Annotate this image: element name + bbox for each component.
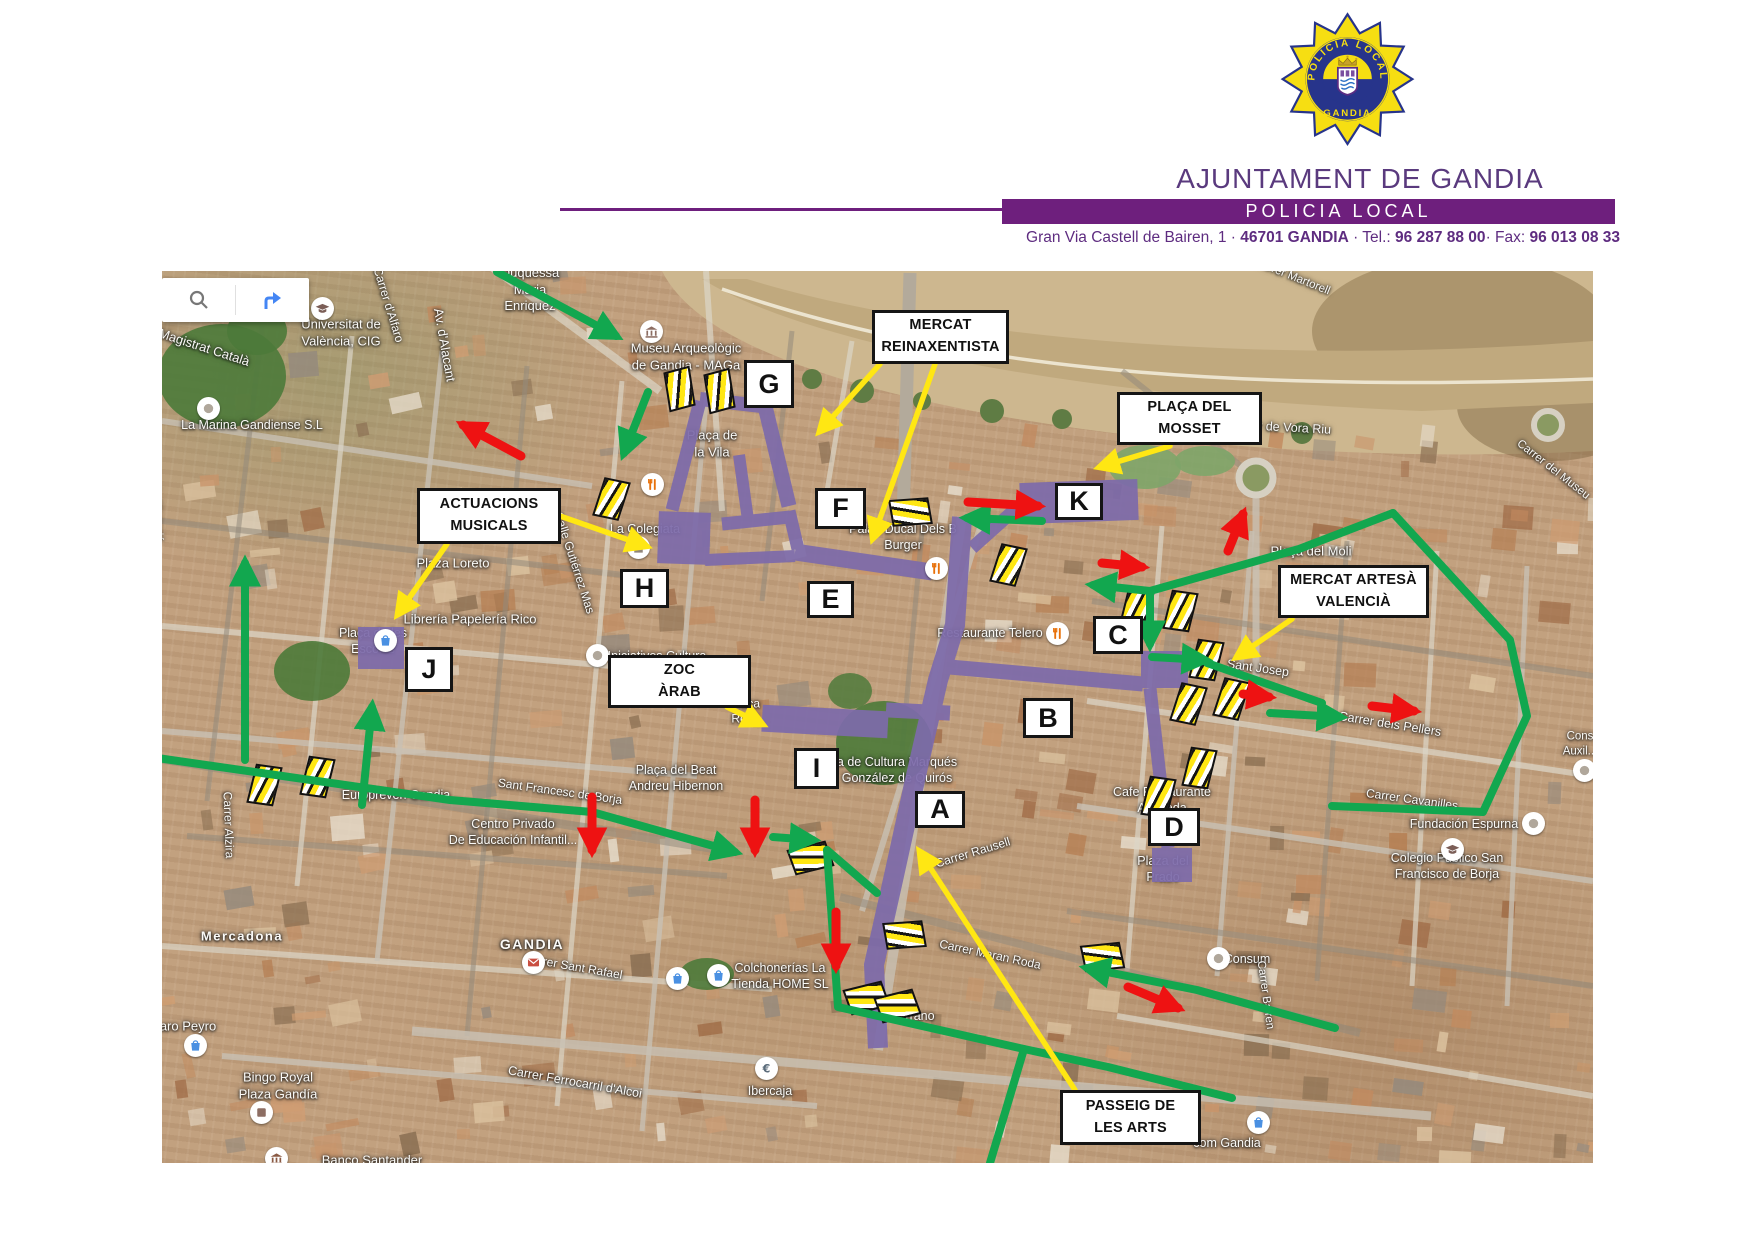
zone-label-I: I <box>794 748 839 789</box>
crosswalk-marking <box>703 368 735 415</box>
map-place-label: Carrer Bairen <box>1253 960 1277 1030</box>
map-place-label: Carrer de l'Estació <box>162 447 166 542</box>
map-place-label: Banco Santander <box>322 1153 422 1163</box>
map-place-label: Librería Papelería Rico <box>404 612 537 629</box>
map-place-label: Plaza del Prado <box>1137 853 1188 885</box>
map-place-label: Carrer d'Alfaro <box>369 271 406 344</box>
callout-zoc-arab: ZOCÀRAB <box>608 655 751 708</box>
callout-actuacions-musicals: ACTUACIONSMUSICALS <box>417 488 561 544</box>
address-line: Gran Via Castell de Bairen, 1 · 46701 GA… <box>900 229 1620 247</box>
map-place-label: Ibercaja <box>748 1083 792 1099</box>
map-place-label: Carrer Maran Roda <box>938 937 1042 974</box>
policia-local-gandia-badge-logo: POLICIA LOCAL GANDIA <box>1277 9 1418 158</box>
crosswalk-marking <box>842 980 890 1015</box>
map-place-label: Iniciatives Cultura <box>608 648 707 664</box>
map-place-label: Sant Josep <box>1226 656 1290 681</box>
map-labels: Duquessa Maria EnriquezUniversitat de Va… <box>162 271 1593 1163</box>
crosswalk-marking <box>1212 677 1251 721</box>
callout-line: MERCAT ARTESÀ <box>1290 570 1417 592</box>
callout-line: MUSICALS <box>450 516 527 538</box>
map-place-label: aro Peyro <box>162 1019 216 1036</box>
poi-mail-icon <box>522 951 545 974</box>
zone-label-B: B <box>1023 698 1073 738</box>
map-place-label: Sant Francesc de Borja <box>497 776 623 809</box>
callout-line: ÀRAB <box>658 682 701 704</box>
poi-bank-icon <box>265 1147 288 1163</box>
map-place-label: Mercadona <box>201 929 283 946</box>
crosswalk-marking <box>786 840 834 875</box>
map-place-label: Carrer Alzira <box>219 791 237 858</box>
map-place-label: Magistrat Català <box>162 325 252 370</box>
callout-line: MERCAT <box>909 315 971 337</box>
poi-shopping-icon <box>1247 1111 1270 1134</box>
map-place-label: Plaça de les Escoles <box>339 625 407 657</box>
crosswalk-marking <box>246 764 282 807</box>
crosswalk-marking <box>888 497 933 526</box>
police-traffic-plan-page: POLICIA LOCAL GANDIA AJUNTAMENT DE GANDI… <box>0 0 1754 1241</box>
callout-mercat-reinaxentista: MERCATREINAXENTISTA <box>872 310 1009 364</box>
badge-shield-icon <box>1338 68 1357 95</box>
map-place-label: Carrer del Museu <box>1513 437 1592 503</box>
map-place-label: Carrer Sant Rafael <box>522 951 623 983</box>
address-part: 96 013 08 33 <box>1529 229 1620 246</box>
crosswalk-marking <box>1181 747 1217 790</box>
zone-label-G: G <box>744 360 794 408</box>
map-place-label: com Gandia <box>1193 1135 1260 1151</box>
crosswalk-marking <box>1118 589 1154 632</box>
address-part: · Fax: <box>1486 229 1530 246</box>
poi-info-icon <box>1573 759 1593 782</box>
map-search-box[interactable] <box>162 278 309 322</box>
poi-shopping-icon <box>707 964 730 987</box>
crosswalk-marking <box>299 756 335 799</box>
crosswalk-marking <box>882 920 927 949</box>
callout-line: PASSEIG DE <box>1086 1096 1176 1118</box>
zone-label-K: K <box>1055 483 1103 520</box>
header-rule <box>560 208 1003 211</box>
map-place-label: Cons Auxil... <box>1563 729 1593 758</box>
zone-label-H: H <box>620 569 669 608</box>
map-place-label: Europreven Gandia <box>342 787 450 803</box>
address-part: · Tel.: <box>1349 229 1395 246</box>
poi-school-icon <box>1441 838 1464 861</box>
zone-label-F: F <box>815 488 866 529</box>
callout-line: VALENCIÀ <box>1316 592 1391 614</box>
address-part: 96 287 88 00 <box>1395 229 1486 246</box>
map-place-label: Centro Privado De Educación Infantil... <box>449 816 578 848</box>
crosswalk-marking <box>592 477 631 521</box>
zone-label-A: A <box>915 791 965 828</box>
callout-line: REINAXENTISTA <box>881 337 999 359</box>
org-title: AJUNTAMENT DE GANDIA <box>1160 163 1560 195</box>
directions-icon[interactable] <box>236 288 309 312</box>
map-place-label: Consum <box>1224 951 1271 967</box>
map-place-label: Carrer dels Pellers <box>1338 708 1443 740</box>
map-place-label: Restaurante Telero <box>937 625 1042 641</box>
poi-restaurant-icon <box>925 557 948 580</box>
map-place-label: a de Cultura Marqués González de Quirós <box>837 754 957 786</box>
callout-placa-del-mosset: PLAÇA DEL MOSSET <box>1117 392 1262 445</box>
map-place-label: Carrer Martorell <box>1252 271 1332 299</box>
poi-info-icon <box>197 397 220 420</box>
poi-info-icon <box>586 644 609 667</box>
map-place-label: Av. d'Alacant <box>429 307 458 383</box>
poi-info-icon <box>1207 947 1230 970</box>
svg-text:€: € <box>762 1062 771 1075</box>
map-poi-icons: € <box>162 271 1593 1163</box>
map-place-label: Cafe Restaurante Alameda <box>1113 784 1211 816</box>
poi-museum-icon <box>640 320 663 343</box>
callout-mercat-artesa-valencia: MERCAT ARTESÀVALENCIÀ <box>1278 565 1429 618</box>
crosswalk-marking <box>873 988 921 1023</box>
zone-label-C: C <box>1093 616 1143 654</box>
poi-shopping-icon <box>666 967 689 990</box>
map-place-label: GANDIA <box>500 936 564 954</box>
callout-line: LES ARTS <box>1094 1118 1167 1140</box>
map-place-label: rrano <box>905 1008 934 1024</box>
map-place-label: La Marina Gandiense S.L <box>181 417 323 433</box>
crosswalk-marking <box>1162 590 1198 633</box>
address-part: Gran Via Castell de Bairen, 1 · <box>1026 229 1240 246</box>
map-place-label: Carrer Rausell <box>934 834 1012 871</box>
satellite-imagery <box>162 271 1593 1163</box>
zone-label-E: E <box>807 581 854 618</box>
poi-euro-icon: € <box>755 1057 778 1080</box>
map-place-label: Carrer de Vora Riu <box>1227 416 1332 437</box>
map-place-label: Plaça Rei J <box>730 697 760 728</box>
callout-line: ACTUACIONS <box>440 494 539 516</box>
crosswalk-marking <box>1140 776 1176 819</box>
map-place-label: Universitat de València, CIG <box>301 316 380 349</box>
map-place-label: Palau Ducal Dels B Burger <box>849 521 957 553</box>
address-part: 46701 GANDIA <box>1240 229 1349 246</box>
annotation-boxes: MERCATREINAXENTISTAPLAÇA DEL MOSSETACTUA… <box>162 271 1593 1163</box>
poi-info-icon <box>1522 812 1545 835</box>
map-place-label: Duquessa Maria Enriquez <box>501 271 560 315</box>
map-place-label: Colchonerías La Tienda HOME SL <box>731 960 829 992</box>
search-icon[interactable] <box>162 288 235 312</box>
callout-line: ZOC <box>664 660 695 682</box>
satellite-map[interactable]: Duquessa Maria EnriquezUniversitat de Va… <box>162 271 1593 1163</box>
map-place-label: Carrer Cavanilles <box>1365 786 1459 814</box>
zone-label-D: D <box>1148 808 1200 846</box>
closure-zones <box>162 271 1593 1163</box>
callout-line: PLAÇA DEL MOSSET <box>1120 397 1259 441</box>
poi-shopping-icon <box>374 629 397 652</box>
poi-shopping-icon <box>184 1034 207 1057</box>
map-place-label: La Colegiata <box>610 521 680 537</box>
map-place-label: Plaça del Moli <box>1271 544 1352 561</box>
poi-restaurant-icon <box>641 473 664 496</box>
crosswalk-marking <box>989 543 1028 587</box>
map-place-label: Fundación Espurna <box>1410 816 1518 832</box>
badge-ring-bottom-text: GANDIA <box>1323 108 1371 119</box>
zone-label-J: J <box>405 647 453 692</box>
map-place-label: Carrer Ferrocarril d'Alcoi <box>507 1062 643 1101</box>
poi-church-icon <box>627 536 650 559</box>
crosswalk-marking <box>1169 682 1208 726</box>
map-place-label: Museu Arqueològic de Gandia - MAGa <box>631 340 742 373</box>
crosswalk-markings <box>162 271 1593 1163</box>
map-place-label: Calle Gutiérrez Mas <box>550 510 597 616</box>
map-place-label: Plaça de la Vila <box>687 427 738 460</box>
poi-bingo-icon <box>250 1101 273 1124</box>
crosswalk-marking <box>1080 942 1126 973</box>
policia-local-banner: POLICIA LOCAL <box>1002 199 1615 224</box>
poi-restaurant-icon <box>1046 622 1069 645</box>
map-place-label: Bingo Royal Plaza Gandía <box>239 1069 318 1102</box>
callout-passeig-de-les-arts: PASSEIG DELES ARTS <box>1060 1090 1201 1145</box>
crosswalk-marking <box>663 366 695 413</box>
map-place-label: Plaça del Beat Andreu Hibernon <box>629 762 724 794</box>
traffic-arrows <box>162 271 1593 1163</box>
map-place-label: Colegio Público San Francisco de Borja <box>1391 850 1504 882</box>
poi-school-icon <box>311 297 334 320</box>
map-place-label: Plaza Loreto <box>417 556 490 573</box>
crosswalk-marking <box>1188 639 1224 682</box>
